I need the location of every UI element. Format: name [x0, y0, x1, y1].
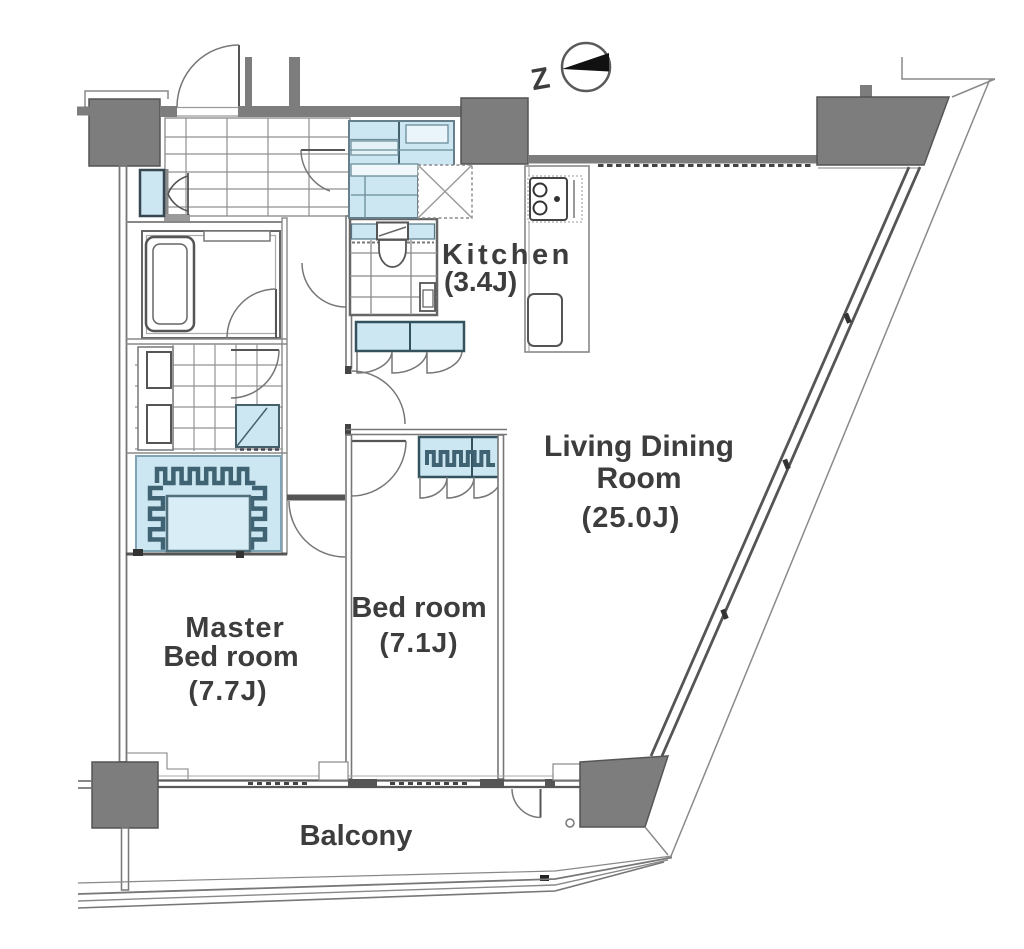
svg-text:Bed room: Bed room	[351, 592, 486, 624]
svg-text:(25.0J): (25.0J)	[582, 502, 681, 534]
svg-text:Room: Room	[597, 462, 682, 495]
svg-text:Bed room: Bed room	[163, 641, 298, 673]
svg-text:Master: Master	[185, 612, 285, 644]
svg-text:(3.4J): (3.4J)	[444, 266, 517, 297]
svg-text:(7.7J): (7.7J)	[188, 675, 267, 706]
svg-text:Living Dining: Living Dining	[544, 430, 734, 463]
svg-text:(7.1J): (7.1J)	[379, 627, 458, 658]
svg-text:Balcony: Balcony	[300, 820, 413, 852]
